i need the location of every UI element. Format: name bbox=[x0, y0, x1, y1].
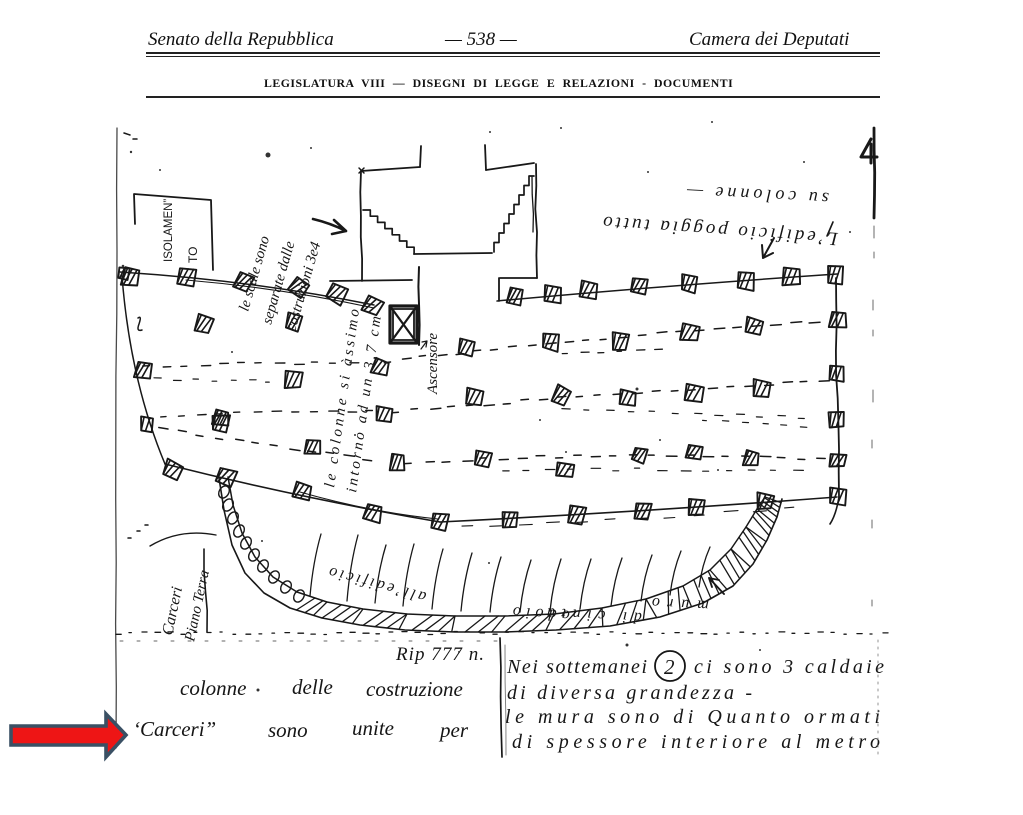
svg-text:di diversa grandezza -: di diversa grandezza - bbox=[507, 682, 752, 704]
svg-text:L’edificio poggia tutto: L’edificio poggia tutto bbox=[602, 212, 839, 249]
svg-text:ISOLAMEN”: ISOLAMEN” bbox=[163, 199, 175, 262]
svg-text:costruzione: costruzione bbox=[366, 677, 463, 701]
svg-text:delle: delle bbox=[292, 675, 333, 699]
svg-text:Ascensore: Ascensore bbox=[425, 333, 441, 395]
svg-text:‘Carceri”: ‘Carceri” bbox=[133, 717, 216, 741]
svg-text:di spessore interiore al metro: di spessore interiore al metro bbox=[512, 731, 880, 753]
svg-text:sono: sono bbox=[268, 718, 308, 742]
svg-text:TO: TO bbox=[186, 247, 200, 263]
svg-text:per: per bbox=[438, 718, 469, 742]
svg-text:Rip 777 n.: Rip 777 n. bbox=[395, 644, 484, 665]
svg-text:Nei sottemanei: Nei sottemanei bbox=[506, 656, 647, 678]
svg-text:colonne: colonne bbox=[180, 676, 246, 700]
svg-text:2: 2 bbox=[664, 655, 675, 679]
svg-text:su colonne —: su colonne — bbox=[685, 182, 829, 209]
svg-text:all’edificio: all’edificio bbox=[327, 563, 428, 605]
svg-text:le mura sono di Quanto ormati: le mura sono di Quanto ormati bbox=[505, 706, 880, 728]
svg-text:Carceri: Carceri bbox=[159, 585, 186, 637]
svg-text:unite: unite bbox=[352, 716, 394, 740]
svg-text:ci sono 3 caldaie: ci sono 3 caldaie bbox=[694, 656, 884, 678]
